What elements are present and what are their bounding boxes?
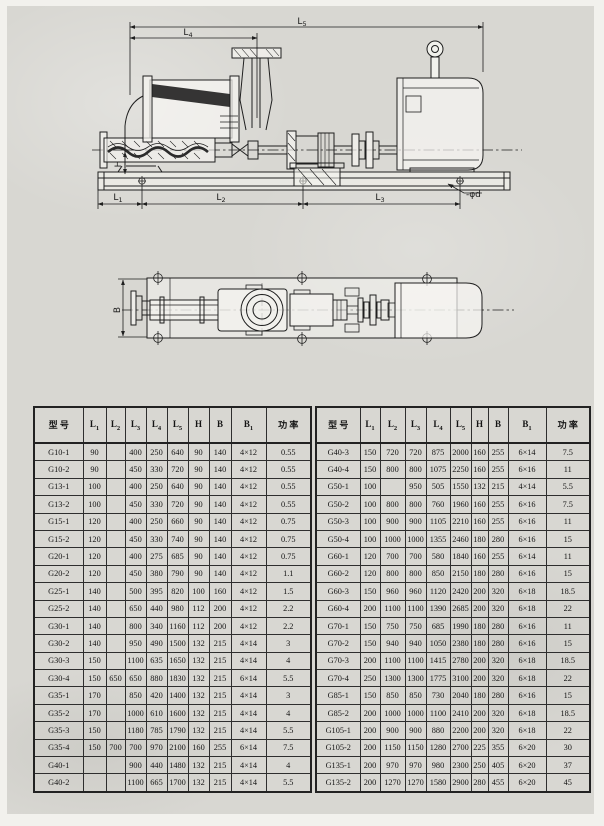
value-cell: 2210	[450, 513, 471, 530]
value-cell: 132	[188, 652, 209, 669]
value-cell: 120	[83, 513, 106, 530]
value-cell: 1000	[380, 530, 405, 547]
value-cell: 132	[188, 722, 209, 739]
model-cell: G30-4	[34, 670, 83, 687]
value-cell: 340	[146, 617, 167, 634]
value-cell: 215	[488, 478, 508, 495]
value-cell: 1150	[405, 739, 426, 756]
value-cell: 180	[471, 635, 488, 652]
model-cell: G70-1	[316, 617, 360, 634]
value-cell: 650	[125, 600, 146, 617]
value-cell: 6×20	[508, 739, 546, 756]
label-phi-d: -φd	[466, 190, 481, 200]
value-cell: 2000	[450, 443, 471, 461]
value-cell: 1280	[426, 739, 450, 756]
value-cell	[106, 565, 125, 582]
model-cell: G135-1	[316, 757, 360, 774]
column-header-subscript: 4	[158, 424, 161, 431]
value-cell: 100	[360, 530, 380, 547]
table-row: G40-190044014801322154×144	[34, 757, 311, 774]
value-cell: 2250	[450, 461, 471, 478]
value-cell: 1160	[167, 617, 188, 634]
value-cell: 90	[188, 513, 209, 530]
table-row: G70-115075075068519901802806×1611	[316, 617, 590, 634]
value-cell: 750	[405, 617, 426, 634]
value-cell: 505	[426, 478, 450, 495]
value-cell: 215	[209, 722, 231, 739]
value-cell: 685	[167, 548, 188, 565]
value-cell: 160	[471, 443, 488, 461]
value-cell: 450	[125, 565, 146, 582]
table-row: G13-1100400250640901404×120.55	[34, 478, 311, 495]
value-cell: 1.5	[266, 583, 311, 600]
value-cell: 1105	[426, 513, 450, 530]
value-cell: 850	[125, 687, 146, 704]
column-header-text: 型 号	[328, 420, 348, 430]
value-cell	[106, 548, 125, 565]
value-cell: 5.5	[266, 774, 311, 792]
value-cell: 6×14	[508, 443, 546, 461]
table-row: G15-2120450330740901404×120.75	[34, 530, 311, 547]
value-cell: 900	[405, 513, 426, 530]
value-cell	[106, 461, 125, 478]
value-cell: 150	[360, 635, 380, 652]
table-row: G70-425013001300177531002003206×1822	[316, 670, 590, 687]
value-cell: 4×12	[231, 443, 266, 461]
table-row: G40-2110066517001322154×145.5	[34, 774, 311, 792]
value-cell: 90	[188, 530, 209, 547]
table-row: G50-3100900900110522101602556×1611	[316, 513, 590, 530]
table-row: G105-120090090088022002003206×1822	[316, 722, 590, 739]
value-cell: 900	[380, 722, 405, 739]
column-header: 型 号	[316, 407, 360, 443]
column-header: L3	[125, 407, 146, 443]
value-cell: 132	[188, 687, 209, 704]
value-cell: 1390	[426, 600, 450, 617]
value-cell: 140	[209, 496, 231, 513]
value-cell: 3	[266, 635, 311, 652]
value-cell: 280	[488, 687, 508, 704]
value-cell	[83, 757, 106, 774]
value-cell	[106, 722, 125, 739]
value-cell: 850	[380, 687, 405, 704]
value-cell: 140	[83, 635, 106, 652]
value-cell: 200	[360, 600, 380, 617]
value-cell: 215	[209, 687, 231, 704]
value-cell: 255	[209, 739, 231, 756]
value-cell: 6×14	[231, 670, 266, 687]
value-cell: 880	[426, 722, 450, 739]
value-cell	[106, 530, 125, 547]
value-cell: 1990	[450, 617, 471, 634]
header-row: 型 号L1L2L3L4L5HBB1功 率	[316, 407, 590, 443]
column-header: L1	[360, 407, 380, 443]
value-cell: 2150	[450, 565, 471, 582]
value-cell: 120	[360, 548, 380, 565]
value-cell	[106, 600, 125, 617]
column-header: H	[471, 407, 488, 443]
value-cell: 4×12	[231, 513, 266, 530]
model-cell: G30-2	[34, 635, 83, 652]
table-row: G35-3150118078517901322154×145.5	[34, 722, 311, 739]
motor-plan	[388, 283, 482, 338]
value-cell: 1000	[380, 704, 405, 721]
scanned-datasheet-page: { "page": { "background": "#d8d7d2", "in…	[0, 0, 604, 826]
value-cell: 685	[426, 617, 450, 634]
value-cell: 400	[125, 478, 146, 495]
value-cell: 6×16	[508, 687, 546, 704]
value-cell: 650	[125, 670, 146, 687]
model-cell: G30-1	[34, 617, 83, 634]
value-cell: 4×12	[231, 617, 266, 634]
value-cell: 6×16	[508, 565, 546, 582]
table-row: G10-290450330720901404×120.55	[34, 461, 311, 478]
column-header-text: 功 率	[558, 420, 578, 430]
value-cell: 1600	[167, 704, 188, 721]
value-cell	[380, 478, 405, 495]
value-cell: 200	[471, 652, 488, 669]
value-cell: 250	[146, 443, 167, 461]
value-cell: 180	[471, 565, 488, 582]
value-cell: 330	[146, 461, 167, 478]
value-cell: 140	[209, 530, 231, 547]
value-cell: 6×18	[508, 670, 546, 687]
value-cell: 400	[125, 548, 146, 565]
table-row: G25-21406504409801122004×122.2	[34, 600, 311, 617]
spec-table-left: 型 号L1L2L3L4L5HBB1功 率G10-1904002506409014…	[33, 406, 312, 793]
table-row: G135-220012701270158029002804556×2045	[316, 774, 590, 792]
value-cell: 450	[125, 530, 146, 547]
value-cell: 4×14	[231, 635, 266, 652]
value-cell	[106, 513, 125, 530]
bearing-pedestal	[290, 163, 344, 186]
value-cell: 250	[471, 757, 488, 774]
value-cell: 1840	[450, 548, 471, 565]
column-header: L4	[426, 407, 450, 443]
value-cell: 640	[167, 443, 188, 461]
value-cell: 255	[488, 548, 508, 565]
value-cell: 0.55	[266, 478, 311, 495]
model-cell: G20-2	[34, 565, 83, 582]
value-cell: 2.2	[266, 600, 311, 617]
model-cell: G50-2	[316, 496, 360, 513]
value-cell: 132	[188, 635, 209, 652]
value-cell: 200	[471, 670, 488, 687]
column-header-subscript: 3	[137, 424, 140, 431]
value-cell	[106, 443, 125, 461]
value-cell: 11	[546, 461, 590, 478]
value-cell: 150	[360, 617, 380, 634]
table-row: G60-3150960960112024202003206×1818.5	[316, 583, 590, 600]
table-row: G35-415070070097021001602556×147.5	[34, 739, 311, 756]
model-cell: G25-1	[34, 583, 83, 600]
value-cell: 250	[360, 670, 380, 687]
value-cell: 785	[146, 722, 167, 739]
value-cell: 950	[405, 478, 426, 495]
value-cell: 320	[488, 600, 508, 617]
value-cell: 18.5	[546, 704, 590, 721]
column-header: 功 率	[266, 407, 311, 443]
value-cell: 150	[360, 461, 380, 478]
value-cell: 1180	[125, 722, 146, 739]
value-cell: 4×14	[231, 757, 266, 774]
value-cell: 22	[546, 670, 590, 687]
model-cell: G105-1	[316, 722, 360, 739]
column-header: 型 号	[34, 407, 83, 443]
table-row: G25-11405003958201001604×121.5	[34, 583, 311, 600]
value-cell: 18.5	[546, 652, 590, 669]
column-header: L5	[450, 407, 471, 443]
value-cell: 330	[146, 530, 167, 547]
value-cell: 280	[471, 774, 488, 792]
table-row: G60-420011001100139026852003206×1822	[316, 600, 590, 617]
value-cell: 1300	[380, 670, 405, 687]
value-cell: 720	[167, 496, 188, 513]
label-h: H	[114, 161, 124, 168]
value-cell: 225	[471, 739, 488, 756]
value-cell: 320	[488, 722, 508, 739]
value-cell: 5.5	[266, 670, 311, 687]
value-cell: 6×18	[508, 600, 546, 617]
value-cell: 6×16	[508, 617, 546, 634]
model-cell: G40-2	[34, 774, 83, 792]
value-cell: 7.5	[266, 739, 311, 756]
value-cell: 160	[471, 496, 488, 513]
value-cell: 1355	[426, 530, 450, 547]
value-cell: 0.55	[266, 461, 311, 478]
table-row: G13-2100450330720901404×120.55	[34, 496, 311, 513]
model-cell: G85-2	[316, 704, 360, 721]
value-cell: 900	[405, 722, 426, 739]
value-cell: 4×12	[231, 530, 266, 547]
column-header-text: H	[195, 419, 202, 429]
value-cell: 140	[83, 583, 106, 600]
spec-table-right: 型 号L1L2L3L4L5HBB1功 率G40-3150720720875200…	[315, 406, 591, 793]
value-cell: 355	[488, 739, 508, 756]
value-cell: 2410	[450, 704, 471, 721]
column-header-subscript: 1	[96, 424, 99, 431]
value-cell: 580	[426, 548, 450, 565]
value-cell: 700	[380, 548, 405, 565]
value-cell: 275	[146, 548, 167, 565]
model-cell: G40-1	[34, 757, 83, 774]
value-cell: 90	[83, 461, 106, 478]
model-cell: G40-4	[316, 461, 360, 478]
value-cell: 4×12	[231, 461, 266, 478]
model-cell: G35-1	[34, 687, 83, 704]
value-cell: 800	[380, 461, 405, 478]
value-cell: 1050	[426, 635, 450, 652]
value-cell: 215	[209, 652, 231, 669]
value-cell: 112	[188, 600, 209, 617]
pump-body-plan	[218, 285, 287, 335]
value-cell: 100	[83, 478, 106, 495]
model-cell: G60-1	[316, 548, 360, 565]
column-header: 功 率	[546, 407, 590, 443]
value-cell: 1100	[426, 704, 450, 721]
value-cell: 15	[546, 565, 590, 582]
value-cell: 970	[405, 757, 426, 774]
value-cell: 980	[167, 600, 188, 617]
column-header: L4	[146, 407, 167, 443]
table-row: G70-2150940940105023801802806×1615	[316, 635, 590, 652]
value-cell: 150	[83, 739, 106, 756]
value-cell: 250	[146, 478, 167, 495]
value-cell: 1100	[405, 600, 426, 617]
table-row: G135-120097097098023002504056×2037	[316, 757, 590, 774]
value-cell: 5.5	[546, 478, 590, 495]
column-header-text: 功 率	[278, 420, 298, 430]
model-cell: G35-3	[34, 722, 83, 739]
value-cell: 90	[188, 478, 209, 495]
value-cell: 0.75	[266, 548, 311, 565]
value-cell: 120	[360, 565, 380, 582]
value-cell: 380	[146, 565, 167, 582]
column-header: L5	[167, 407, 188, 443]
column-header: B1	[231, 407, 266, 443]
column-header: L2	[380, 407, 405, 443]
value-cell: 1.1	[266, 565, 311, 582]
value-cell: 395	[146, 583, 167, 600]
value-cell: 3	[266, 687, 311, 704]
model-cell: G60-4	[316, 600, 360, 617]
value-cell: 4×12	[231, 548, 266, 565]
column-header-subscript: 5	[462, 424, 465, 431]
value-cell: 1000	[125, 704, 146, 721]
value-cell: 4×14	[231, 704, 266, 721]
model-cell: G70-4	[316, 670, 360, 687]
table-row: G30-214095049015001322154×143	[34, 635, 311, 652]
table-row: G30-114080034011601122004×122.2	[34, 617, 311, 634]
column-header-subscript: 3	[417, 424, 420, 431]
value-cell: 100	[360, 513, 380, 530]
value-cell: 2900	[450, 774, 471, 792]
value-cell: 760	[426, 496, 450, 513]
value-cell: 132	[188, 670, 209, 687]
value-cell: 150	[83, 722, 106, 739]
value-cell: 200	[471, 583, 488, 600]
value-cell: 215	[209, 757, 231, 774]
model-cell: G50-3	[316, 513, 360, 530]
value-cell: 6×18	[508, 704, 546, 721]
value-cell: 6×14	[508, 548, 546, 565]
value-cell: 0.55	[266, 496, 311, 513]
value-cell: 1400	[167, 687, 188, 704]
value-cell: 140	[83, 600, 106, 617]
value-cell: 22	[546, 600, 590, 617]
value-cell: 90	[188, 548, 209, 565]
value-cell: 4×12	[231, 600, 266, 617]
table-row: G50-110095050515501322154×145.5	[316, 478, 590, 495]
column-header-text: 型 号	[49, 420, 69, 430]
value-cell: 11	[546, 617, 590, 634]
value-cell: 4×14	[231, 722, 266, 739]
value-cell	[106, 635, 125, 652]
value-cell: 1150	[380, 739, 405, 756]
value-cell: 0.55	[266, 443, 311, 461]
value-cell: 1000	[405, 704, 426, 721]
value-cell: 1580	[426, 774, 450, 792]
value-cell: 11	[546, 548, 590, 565]
value-cell: 90	[188, 443, 209, 461]
value-cell: 700	[106, 739, 125, 756]
value-cell: 132	[188, 774, 209, 792]
value-cell: 1500	[167, 635, 188, 652]
value-cell: 4×12	[231, 496, 266, 513]
value-cell: 15	[546, 635, 590, 652]
model-cell: G13-1	[34, 478, 83, 495]
column-header-text: H	[476, 419, 483, 429]
table-row: G35-117085042014001322154×143	[34, 687, 311, 704]
value-cell: 405	[488, 757, 508, 774]
value-cell: 6×16	[508, 635, 546, 652]
value-cell: 90	[188, 565, 209, 582]
model-cell: G35-2	[34, 704, 83, 721]
value-cell: 200	[360, 774, 380, 792]
value-cell: 6×20	[508, 757, 546, 774]
value-cell: 200	[209, 617, 231, 634]
value-cell: 500	[125, 583, 146, 600]
value-cell: 30	[546, 739, 590, 756]
value-cell: 255	[488, 443, 508, 461]
value-cell: 4×12	[231, 565, 266, 582]
value-cell: 4×12	[231, 478, 266, 495]
value-cell: 4×14	[231, 687, 266, 704]
label-l2: L2	[216, 193, 225, 204]
model-cell: G50-1	[316, 478, 360, 495]
value-cell: 960	[380, 583, 405, 600]
value-cell: 150	[83, 652, 106, 669]
value-cell: 800	[125, 617, 146, 634]
column-header-subscript: 1	[371, 424, 374, 431]
value-cell: 640	[167, 478, 188, 495]
value-cell: 200	[360, 739, 380, 756]
value-cell: 120	[83, 530, 106, 547]
label-b: B	[113, 307, 123, 313]
column-header: L1	[83, 407, 106, 443]
value-cell: 700	[125, 739, 146, 756]
value-cell	[106, 478, 125, 495]
value-cell	[83, 774, 106, 792]
value-cell: 150	[360, 687, 380, 704]
value-cell: 140	[83, 617, 106, 634]
table-row: G20-1120400275685901404×120.75	[34, 548, 311, 565]
table-row: G10-190400250640901404×120.55	[34, 443, 311, 461]
table-row: G85-220010001000110024102003206×1818.5	[316, 704, 590, 721]
value-cell: 720	[167, 461, 188, 478]
table-row: G20-2120450380790901404×121.1	[34, 565, 311, 582]
value-cell: 90	[83, 443, 106, 461]
value-cell	[106, 704, 125, 721]
table-row: G50-410010001000135524601802806×1615	[316, 530, 590, 547]
value-cell: 420	[146, 687, 167, 704]
value-cell: 610	[146, 704, 167, 721]
value-cell: 970	[380, 757, 405, 774]
value-cell: 440	[146, 600, 167, 617]
model-cell: G35-4	[34, 739, 83, 756]
value-cell: 1480	[167, 757, 188, 774]
value-cell: 200	[360, 757, 380, 774]
column-header-subscript: 5	[179, 424, 182, 431]
value-cell: 132	[471, 478, 488, 495]
value-cell: 1790	[167, 722, 188, 739]
value-cell: 2460	[450, 530, 471, 547]
value-cell: 440	[146, 757, 167, 774]
table-row: G105-220011501150128027002253556×2030	[316, 739, 590, 756]
model-cell: G85-1	[316, 687, 360, 704]
value-cell: 1000	[405, 530, 426, 547]
value-cell: 720	[405, 443, 426, 461]
